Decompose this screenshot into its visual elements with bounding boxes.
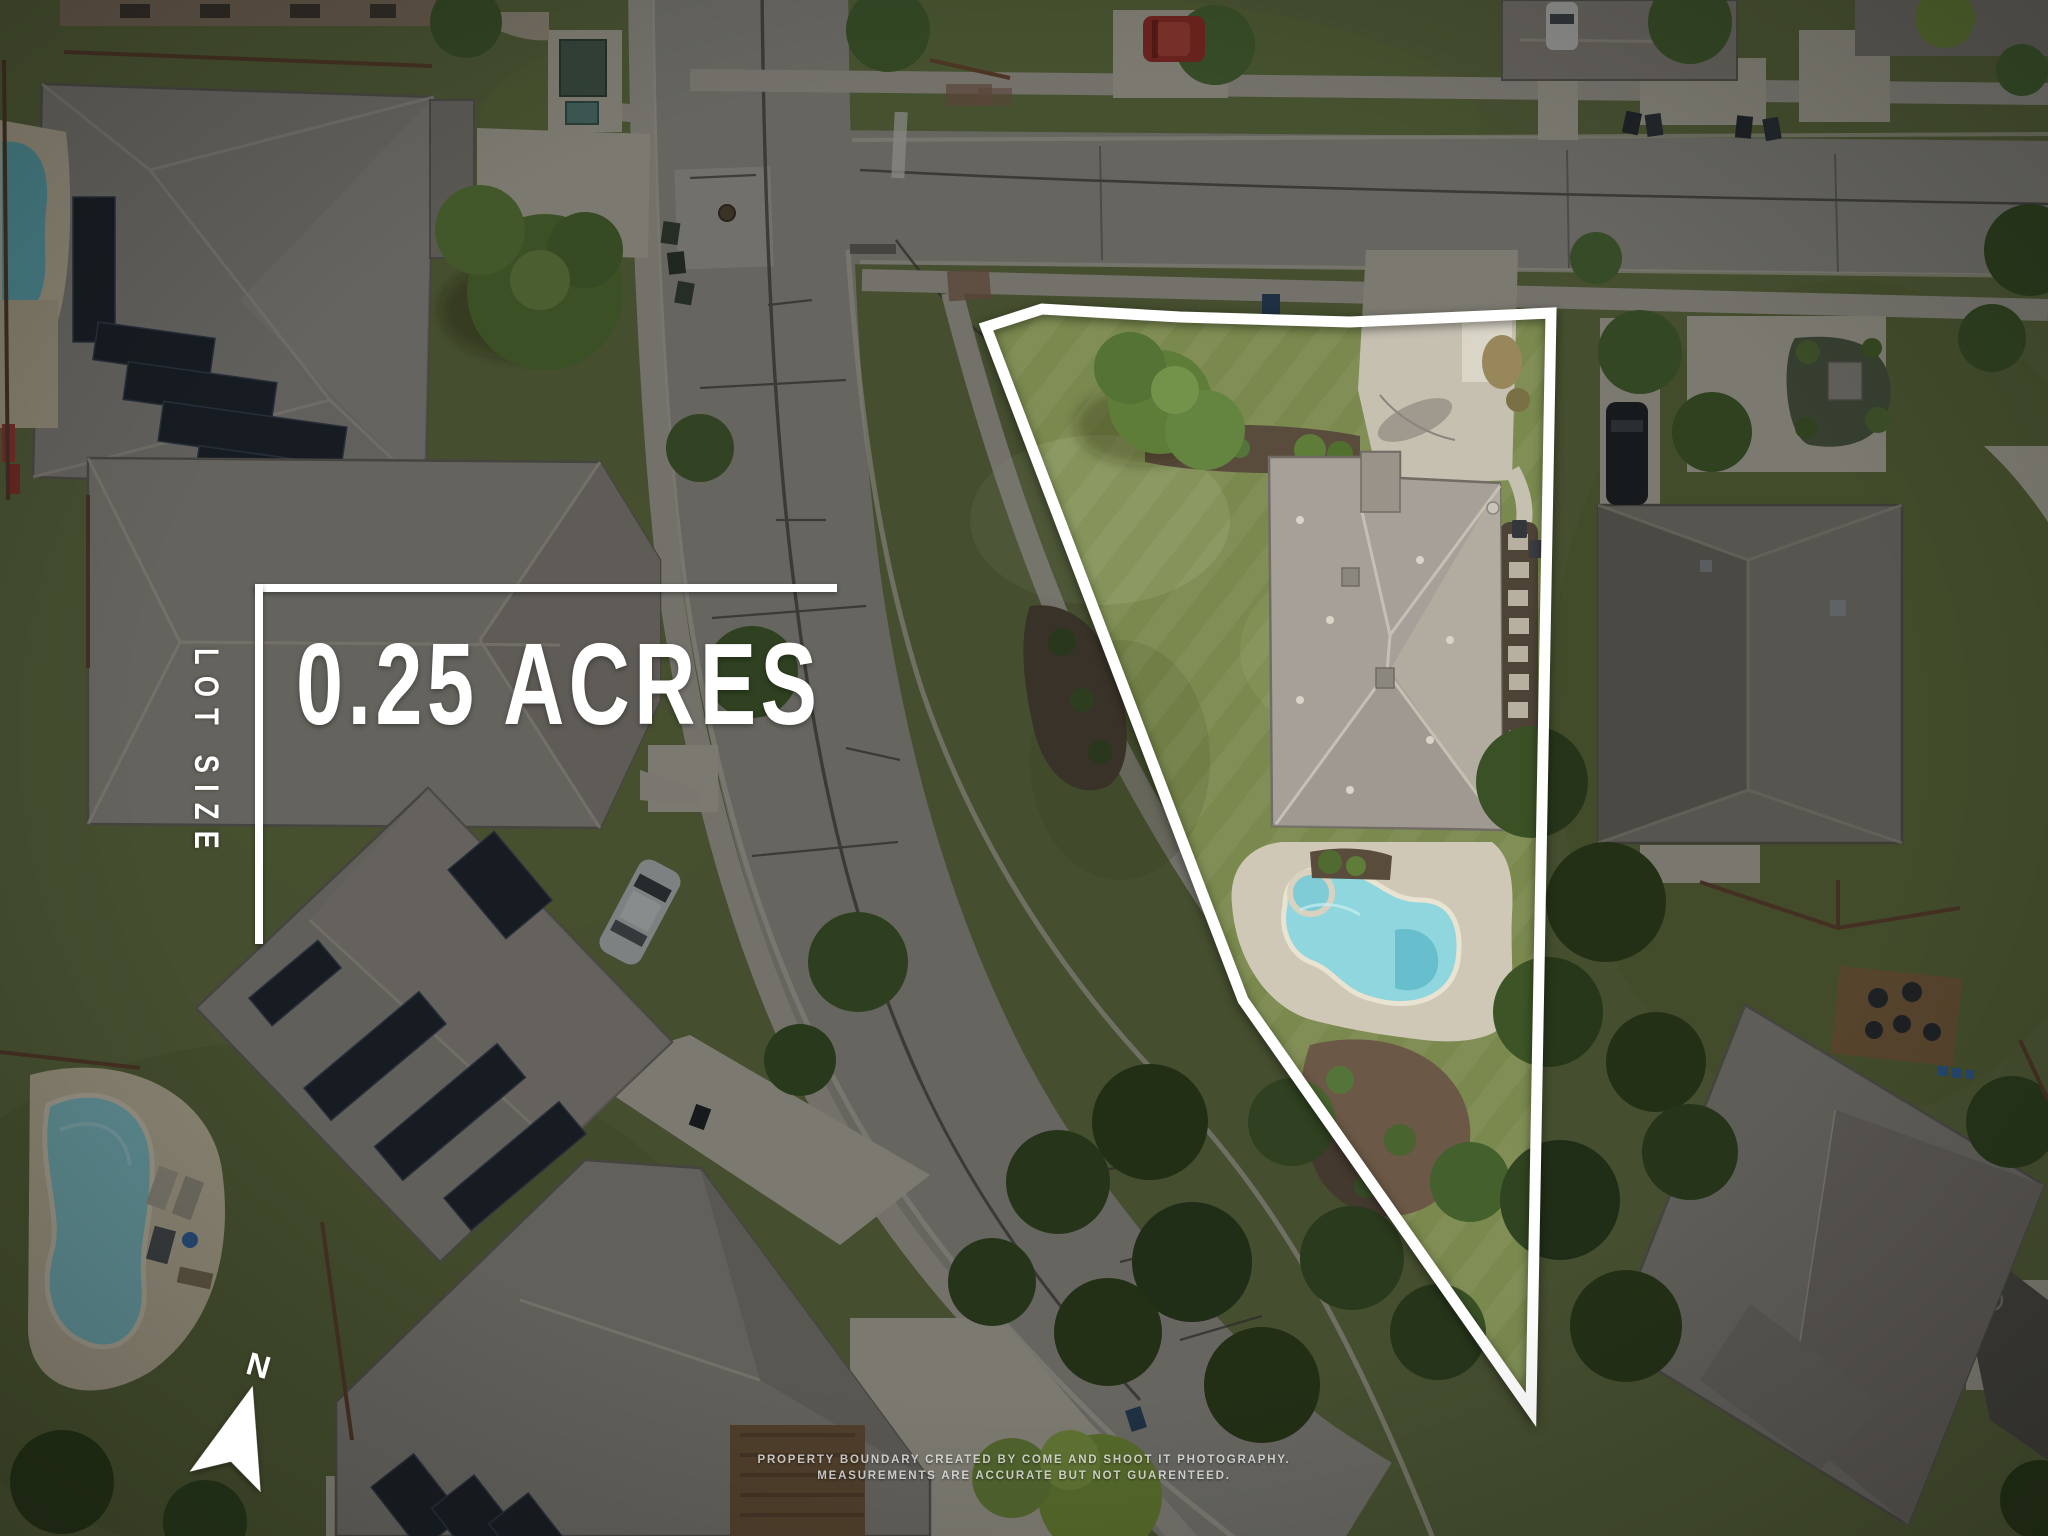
lot-size-rule-vertical xyxy=(255,584,263,944)
disclaimer: PROPERTY BOUNDARY CREATED BY COME AND SH… xyxy=(0,1452,2048,1484)
vignette xyxy=(0,0,2048,1536)
neighborhood-scene xyxy=(0,0,2048,1536)
disclaimer-line-2: MEASUREMENTS ARE ACCURATE BUT NOT GUAREN… xyxy=(0,1468,2048,1484)
lot-size-rule-horizontal xyxy=(255,584,837,592)
disclaimer-line-1: PROPERTY BOUNDARY CREATED BY COME AND SH… xyxy=(0,1452,2048,1468)
lot-size-label: LOT SIZE xyxy=(186,648,226,860)
lot-size-value: 0.25 ACRES xyxy=(296,626,821,742)
aerial-photo: LOT SIZE 0.25 ACRES N PROPERTY BOUNDARY … xyxy=(0,0,2048,1536)
